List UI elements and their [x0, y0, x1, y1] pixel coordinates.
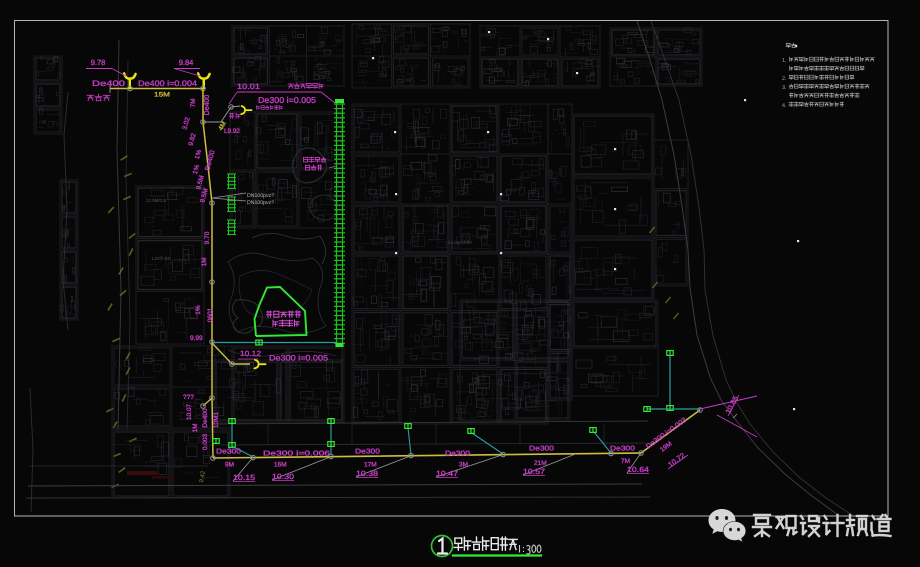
svg-text:DN100pvc?: DN100pvc?: [247, 193, 274, 199]
svg-text:14.98/13.98: 14.98/13.98: [448, 240, 472, 245]
svg-text:1.: 1.: [782, 58, 787, 64]
svg-text:7M: 7M: [621, 458, 630, 465]
svg-text:De300 i=0.005: De300 i=0.005: [258, 95, 316, 105]
svg-text:9.84: 9.84: [179, 58, 194, 67]
svg-text:1%: 1%: [195, 305, 202, 315]
svg-text:4.: 4.: [782, 103, 787, 109]
svg-text:10.01: 10.01: [237, 82, 260, 91]
svg-text:DN100pvc?: DN100pvc?: [247, 200, 274, 206]
svg-text:10.38: 10.38: [356, 469, 378, 478]
svg-text:???: ???: [183, 394, 194, 401]
svg-text:De300 i=0.006: De300 i=0.006: [263, 451, 330, 458]
svg-text:De300: De300: [216, 449, 241, 456]
svg-text:10M1: 10M1: [213, 411, 220, 428]
svg-text:9.70: 9.70: [204, 231, 211, 244]
svg-text:De300: De300: [529, 446, 554, 453]
svg-text:9.78: 9.78: [91, 58, 106, 67]
svg-text:De300: De300: [355, 449, 380, 456]
svg-text:10.15: 10.15: [233, 473, 255, 482]
svg-text:3.: 3.: [782, 85, 787, 91]
svg-text:22.5M/1.5: 22.5M/1.5: [146, 198, 167, 203]
svg-text:10.64: 10.64: [627, 465, 649, 474]
svg-text:9.99: 9.99: [190, 335, 203, 342]
svg-text:7M: 7M: [190, 98, 197, 107]
svg-text:2.: 2.: [782, 76, 787, 82]
svg-text:9M: 9M: [225, 462, 234, 469]
svg-text:10.12: 10.12: [240, 349, 261, 358]
svg-text:De300: De300: [610, 446, 635, 453]
svg-text:10.47: 10.47: [436, 469, 458, 478]
svg-text:17M: 17M: [364, 462, 377, 469]
svg-text:De400: De400: [202, 408, 209, 428]
svg-text:0601: 0601: [207, 307, 214, 322]
svg-text:De300 i=0.005: De300 i=0.005: [269, 354, 329, 363]
svg-text:1M: 1M: [192, 423, 199, 432]
svg-text:10.07: 10.07: [186, 403, 193, 420]
svg-text:1M: 1M: [201, 257, 208, 266]
svg-text:De400: De400: [204, 95, 211, 116]
svg-text:10.57: 10.57: [523, 467, 545, 476]
svg-text:10.30: 10.30: [272, 472, 294, 481]
svg-text:L2#f7-A0: L2#f7-A0: [152, 256, 171, 261]
svg-text:16M: 16M: [274, 462, 287, 469]
svg-text:0.003: 0.003: [202, 433, 209, 450]
svg-text:De400 i=0.004: De400 i=0.004: [138, 79, 198, 88]
svg-text:15M: 15M: [154, 92, 170, 99]
svg-text:L9.92: L9.92: [224, 128, 240, 135]
svg-text:De300: De300: [445, 451, 470, 458]
svg-text:De400: De400: [92, 79, 126, 88]
